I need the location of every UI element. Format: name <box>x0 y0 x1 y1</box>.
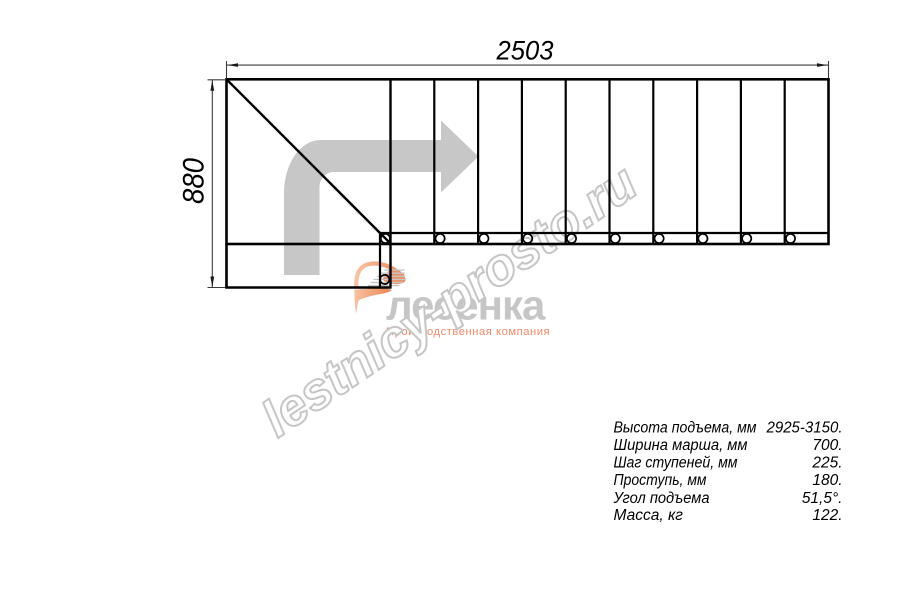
svg-text:Проступь, мм: Проступь, мм <box>614 472 707 489</box>
svg-text:122.: 122. <box>812 507 842 524</box>
svg-text:Ширина марша, мм: Ширина марша, мм <box>614 437 748 454</box>
svg-text:880: 880 <box>178 157 211 204</box>
svg-text:Угол подъема: Угол подъема <box>613 490 710 507</box>
svg-text:2925-3150.: 2925-3150. <box>766 419 843 436</box>
svg-text:700.: 700. <box>812 437 842 454</box>
svg-text:Шаг ступеней, мм: Шаг ступеней, мм <box>614 455 738 472</box>
svg-text:Высота подъема, мм: Высота подъема, мм <box>614 419 757 436</box>
svg-text:Масса, кг: Масса, кг <box>614 507 684 524</box>
svg-text:180.: 180. <box>812 472 842 489</box>
svg-text:225.: 225. <box>811 455 842 472</box>
svg-text:2503: 2503 <box>496 36 554 66</box>
svg-text:51,5°.: 51,5°. <box>802 490 843 507</box>
